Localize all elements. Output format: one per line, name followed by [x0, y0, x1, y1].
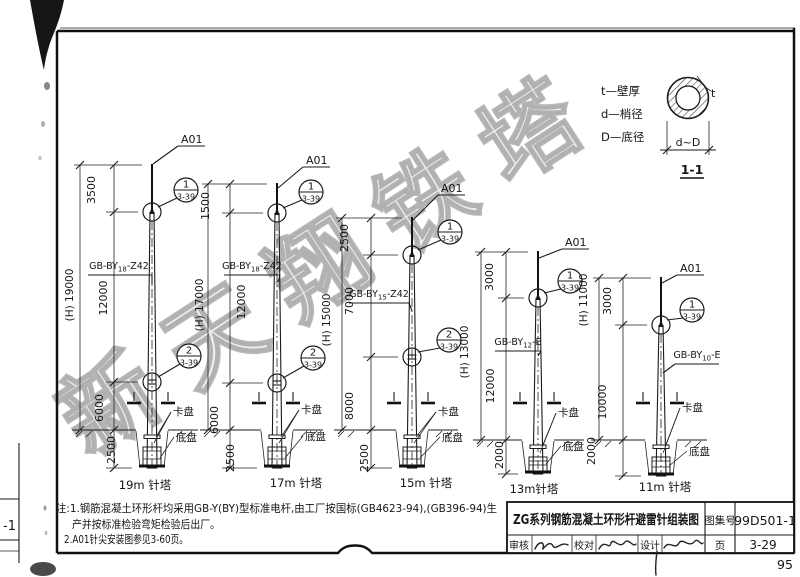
spec-leader	[663, 364, 675, 373]
adjacent-page-text: -1	[3, 519, 16, 534]
dimension-text: 2500	[338, 224, 351, 252]
reviewer-label: 审核	[509, 539, 529, 552]
section-title: 1-1	[681, 162, 704, 177]
ground-hatch	[338, 431, 344, 437]
clamp-plate	[653, 445, 669, 449]
spec-label: GB-BY18-Z42	[89, 261, 149, 274]
clamp-plate-label: 卡盘	[438, 405, 459, 418]
apex-leader	[662, 275, 677, 283]
pit-outline	[396, 431, 400, 467]
scan-speck	[45, 531, 48, 535]
ground-hatch	[86, 431, 92, 437]
needle-socket-arrow	[410, 249, 415, 257]
callout-ref: 3-39	[561, 284, 579, 293]
title-block: ZG系列钢筋混凝土环形杆避雷针组装图 图集号 99D501-1 审核 校对 设计…	[507, 502, 796, 575]
designer-label: 设计	[640, 539, 660, 552]
overall-height-text: (H) 13000	[459, 326, 471, 379]
callout-ref: 3-39	[304, 361, 322, 370]
buried-depth-text: 2000	[493, 441, 506, 469]
callout-number: 2	[310, 348, 316, 359]
callout-leader	[158, 364, 180, 377]
apex-leader	[278, 167, 303, 188]
checker-label: 校对	[574, 539, 594, 552]
pit-outline	[424, 431, 428, 467]
apex-leader	[153, 146, 178, 164]
callout-number: 1	[183, 180, 189, 191]
needle-socket-arrow	[275, 207, 280, 215]
apex-label: A01	[680, 262, 702, 275]
clamp-plate-label: 卡盘	[682, 401, 703, 414]
scanned-drawing-page: 新天翔铁塔 -1	[0, 0, 800, 577]
scan-blob-bottom-left	[30, 562, 56, 576]
callout-leader	[667, 318, 683, 320]
callout-number: 1	[447, 222, 453, 233]
base-leader	[546, 446, 561, 464]
callout-leader	[418, 348, 440, 352]
base-plate-label: 底盘	[305, 430, 326, 443]
dimension-text: 10000	[596, 385, 609, 420]
pit-outline	[261, 431, 265, 467]
legend-line-base-diameter: D—底径	[601, 130, 644, 144]
base-plate-label: 底盘	[442, 431, 463, 444]
drawing-canvas: -1 t—壁厚 d—梢径 D—底径 t d~D 1-1	[0, 0, 800, 577]
dimension-text: 8000	[343, 392, 356, 420]
atlas-no-value: 99D501-1	[734, 513, 796, 528]
pole-outline	[656, 325, 659, 476]
dimension-text: 3000	[601, 287, 614, 315]
clamp-plate-label: 卡盘	[301, 403, 322, 416]
needle-socket-arrow	[659, 319, 664, 327]
note-line-1: 注:1.钢筋混凝土环形杆均采用GB-Y(BY)型标准电杆,由工厂按国标(GB46…	[56, 501, 497, 515]
pole-name-label: 13m针塔	[510, 482, 559, 496]
callout-ref: 3-39	[302, 195, 320, 204]
base-plate-label: 底盘	[689, 445, 710, 458]
callout-ref: 3-39	[441, 235, 459, 244]
clamp-plate-label: 卡盘	[558, 406, 579, 419]
pole-outline	[663, 325, 666, 476]
buried-depth-text: 2500	[358, 444, 371, 472]
section-dim-label: d~D	[676, 136, 701, 149]
clamp-leader	[414, 412, 436, 443]
ring-section-legend: t—壁厚 d—梢径 D—底径 t d~D 1-1	[601, 76, 716, 178]
drawing-title: ZG系列钢筋混凝土环形杆避雷针组装图	[513, 512, 699, 528]
callout-number: 2	[446, 330, 452, 341]
buried-depth-text: 2500	[224, 444, 237, 472]
adjacent-page-fragment: -1	[0, 443, 19, 563]
ground-hatch	[348, 431, 354, 437]
page-number: 95	[777, 557, 793, 572]
atlas-no-label: 图集号	[704, 514, 736, 527]
ground-hatch	[477, 441, 483, 447]
pit-outline	[673, 441, 677, 475]
pole-outline	[154, 212, 157, 468]
callout-number: 1	[308, 182, 314, 193]
dimension-text: 12000	[235, 285, 248, 320]
callout-leader	[418, 240, 441, 250]
callout-ref: 3-39	[440, 343, 458, 352]
legend-line-wall-thickness: t—壁厚	[601, 84, 640, 98]
callout-ref: 3-39	[180, 359, 198, 368]
thickness-label: t	[711, 87, 716, 100]
callout-number: 1	[689, 300, 695, 311]
scan-speck	[41, 121, 45, 127]
callout-ref: 3-39	[683, 313, 701, 322]
scan-speck	[44, 82, 50, 90]
pole-outline	[272, 213, 275, 468]
spec-label: GB-BY15-Z42	[349, 289, 409, 302]
base-plate-label: 底盘	[563, 440, 584, 453]
pole-outline	[147, 212, 150, 468]
spec-label: GB-BY18-Z42	[222, 261, 282, 274]
scan-speck	[38, 156, 41, 161]
pole-figure-11m 针塔: 3000100002000(H) 11000A0113-39GB-BY10-E卡…	[578, 262, 721, 494]
base-leader	[669, 451, 687, 466]
apex-label: A01	[565, 236, 587, 249]
callout-leader	[283, 366, 304, 378]
pole-name-label: 19m 针塔	[119, 478, 172, 492]
base-leader	[285, 436, 303, 458]
dimension-text: 1500	[199, 192, 212, 220]
clamp-plate	[530, 445, 546, 449]
dimension-text: 12000	[484, 369, 497, 404]
spec-label: GB-BY10-E	[673, 350, 720, 363]
ground-hatch	[605, 441, 611, 447]
needle-socket-arrow	[150, 206, 155, 214]
apex-label: A01	[181, 133, 203, 146]
base-leader	[420, 437, 440, 458]
pole-figures: 35001200060002500(H) 19000A0113-3923-39G…	[64, 133, 721, 496]
scan-blob-top-left	[30, 0, 64, 70]
pole-figure-15m 针塔: 2500700080002500(H) 15000A0113-3923-39GB…	[321, 182, 465, 490]
pole-name-label: 17m 针塔	[270, 476, 323, 490]
pit-outline	[522, 441, 526, 473]
apex-leader	[539, 249, 562, 258]
pole-figure-17m 针塔: 15001200060002500(H) 17000A0113-3923-39G…	[194, 154, 330, 490]
base-plate-label: 底盘	[176, 431, 197, 444]
legend-line-tip-diameter: d—梢径	[601, 107, 643, 121]
overall-height-text: (H) 11000	[578, 274, 590, 327]
scan-speck	[43, 505, 46, 510]
pole-figure-19m 针塔: 35001200060002500(H) 19000A0113-3923-39G…	[64, 133, 205, 492]
pole-outline	[279, 213, 282, 468]
buried-depth-text: 2000	[585, 437, 598, 465]
apex-leader	[413, 195, 438, 220]
clamp-plate-label: 卡盘	[173, 405, 194, 418]
callout-leader	[283, 200, 302, 208]
ring-inner-circle	[676, 86, 700, 110]
dimension-text: 12000	[97, 281, 110, 316]
apex-label: A01	[306, 154, 328, 167]
pole-name-label: 15m 针塔	[400, 476, 453, 490]
dimension-text: 6000	[93, 394, 106, 422]
page-no-value: 3-29	[749, 538, 776, 552]
callout-leader	[544, 289, 561, 293]
note-line-3: 2.A01针尖安装图参见3-60页。	[64, 532, 188, 546]
signature-stray-stroke	[656, 551, 657, 575]
dimension-text: 3500	[85, 176, 98, 204]
pit-outline	[645, 441, 649, 475]
spec-label: GB-BY12-E	[494, 337, 541, 350]
apex-label: A01	[441, 182, 463, 195]
ground-hatch	[76, 431, 82, 437]
overall-height-text: (H) 17000	[194, 279, 206, 332]
callout-ref: 3-39	[177, 193, 195, 202]
page-label: 页	[715, 540, 726, 552]
notes: 注:1.钢筋混凝土环形杆均采用GB-Y(BY)型标准电杆,由工厂按国标(GB46…	[56, 501, 497, 546]
callout-number: 1	[567, 271, 573, 282]
pole-name-label: 11m 针塔	[639, 480, 692, 494]
pole-figure-13m针塔: 3000120002000(H) 13000A0113-39GB-BY12-E卡…	[459, 236, 589, 496]
note-line-2: 产并按标准检验弯矩检验后出厂。	[72, 517, 220, 531]
needle-socket-arrow	[536, 292, 541, 300]
overall-height-text: (H) 15000	[321, 294, 333, 347]
callout-leader	[158, 198, 177, 207]
pit-outline	[136, 431, 140, 467]
buried-depth-text: 2500	[105, 436, 118, 464]
overall-height-text: (H) 19000	[64, 269, 76, 322]
callout-number: 2	[186, 346, 192, 357]
dimension-text: 3000	[483, 263, 496, 291]
